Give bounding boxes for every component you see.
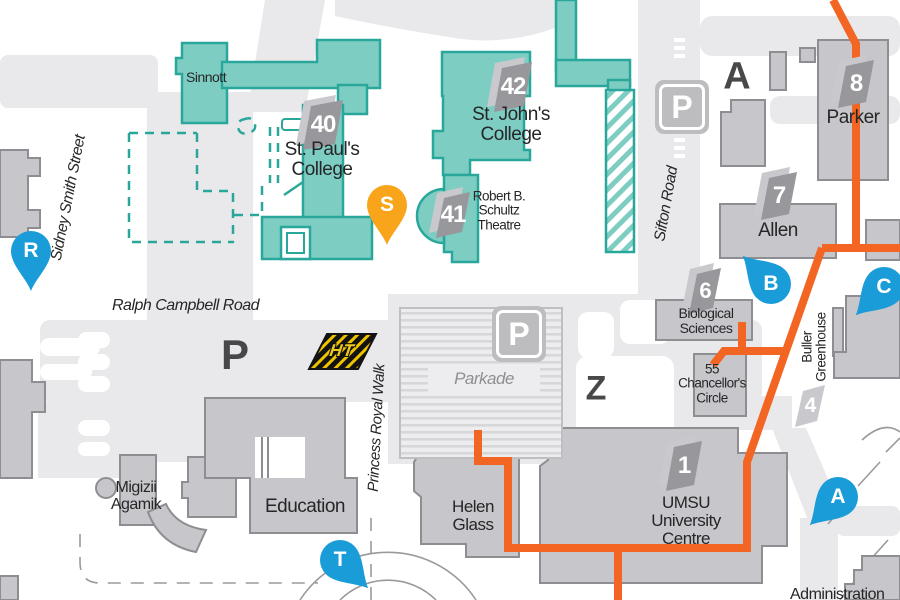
badge-41-number[interactable]: 41 — [441, 201, 466, 229]
label-st-johns: St. John's College — [472, 105, 550, 145]
ht-marker-label[interactable]: HT — [328, 341, 355, 361]
building-thin-annex — [770, 52, 786, 90]
label-migizii: Migizii Agamik — [111, 480, 161, 514]
street-ralph-campbell: Ralph Campbell Road — [112, 298, 259, 315]
building-zone-a — [721, 100, 765, 166]
badge-40-number[interactable]: 40 — [311, 111, 336, 139]
pin-s-letter[interactable]: S — [380, 193, 394, 217]
label-buller: Buller Greenhouse — [801, 312, 830, 381]
se-curve — [862, 428, 900, 441]
label-parkade: Parkade — [454, 370, 514, 388]
label-parker: Parker — [827, 108, 880, 128]
building-st-pauls-sq — [281, 227, 310, 259]
building-st-pauls-south — [262, 217, 372, 259]
label-schultz: Robert B. Schultz Theatre — [473, 190, 526, 233]
parking-sign-letter: P — [659, 84, 705, 130]
se-hatch-3 — [886, 438, 900, 452]
badge-6-number[interactable]: 6 — [699, 278, 710, 304]
pin-t — [312, 532, 383, 600]
badge-42-number[interactable]: 42 — [501, 73, 526, 101]
zone-letter-z: Z — [586, 370, 607, 409]
building-east-edge — [866, 220, 900, 260]
label-allen: Allen — [758, 221, 798, 241]
label-st-pauls: St. Paul's College — [285, 140, 360, 180]
road-topleft-lot — [0, 55, 158, 108]
parking-sign-parkade[interactable]: P — [492, 306, 546, 362]
building-buller-bar — [833, 308, 843, 356]
label-chancellors: 55 Chancellor's Circle — [678, 363, 746, 406]
parking-sign-sifton[interactable]: P — [655, 80, 709, 134]
se-hatch-2 — [858, 462, 880, 486]
education-courtyard — [255, 437, 305, 478]
badge-1-number[interactable]: 1 — [678, 452, 690, 480]
parking-sign-letter: P — [496, 310, 542, 358]
building-sw-corner — [0, 576, 18, 600]
road-top-blob — [335, 0, 555, 40]
campus-map: Sidney Smith Street Ralph Campbell Road … — [0, 0, 900, 600]
building-construction-hatch — [606, 90, 634, 252]
road-sidney-smith — [147, 92, 253, 330]
road-sifton — [638, 0, 700, 302]
building-west-upper — [0, 150, 40, 237]
pin-r-letter[interactable]: R — [23, 239, 38, 263]
badge-7-number[interactable]: 7 — [773, 182, 785, 210]
st-pauls-ramp — [284, 182, 303, 195]
badge-8-number[interactable]: 8 — [850, 70, 862, 98]
label-sinnott: Sinnott — [186, 70, 226, 85]
label-umsu: UMSU University Centre — [651, 494, 721, 548]
pin-c-letter[interactable]: C — [876, 275, 891, 299]
pin-t-letter[interactable]: T — [334, 548, 347, 572]
label-education: Education — [265, 497, 345, 517]
lot-letter-p: P — [221, 331, 249, 379]
pin-b-letter[interactable]: B — [763, 272, 778, 296]
zone-letter-a: A — [723, 56, 750, 99]
label-biological: Biological Sciences — [679, 306, 734, 336]
pin-a-letter[interactable]: A — [830, 485, 845, 509]
building-parker-annex — [800, 48, 815, 62]
road-diagonal-band — [247, 0, 325, 112]
label-helen-glass: Helen Glass — [452, 498, 494, 534]
label-admin-partial: Administration — [790, 587, 884, 600]
badge-4-number[interactable]: 4 — [805, 394, 816, 418]
